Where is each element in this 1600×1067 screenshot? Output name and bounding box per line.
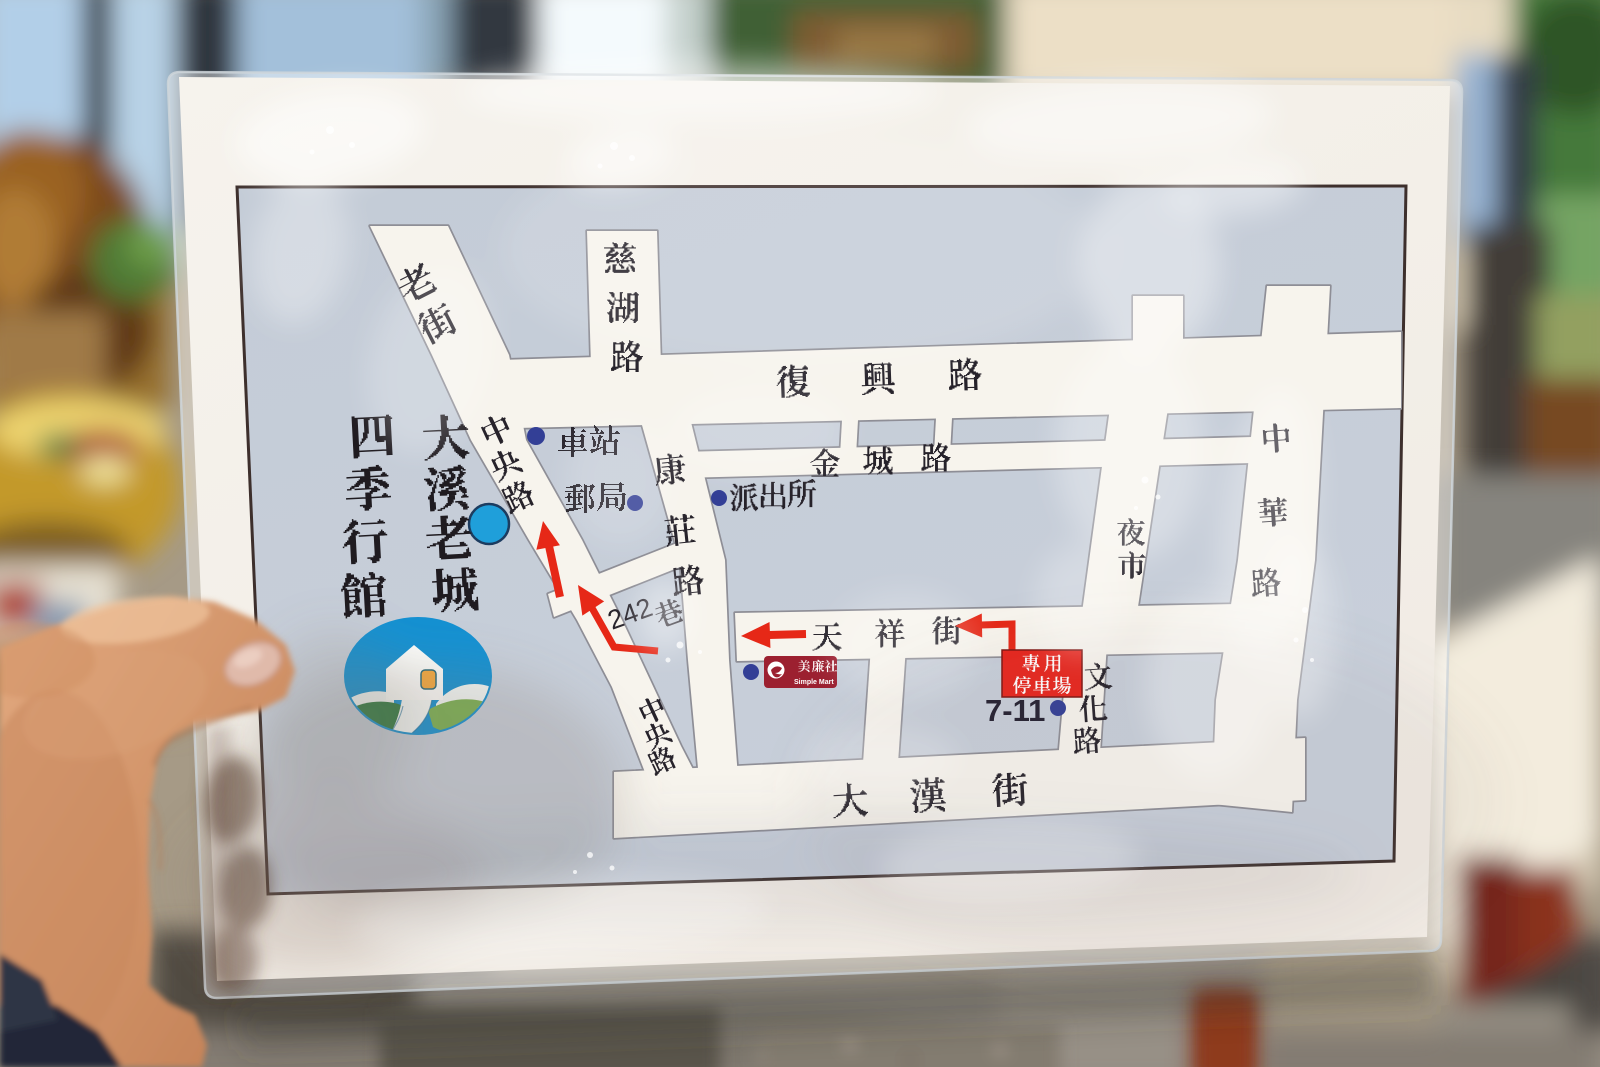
- svg-text:Simple Mart: Simple Mart: [794, 679, 834, 686]
